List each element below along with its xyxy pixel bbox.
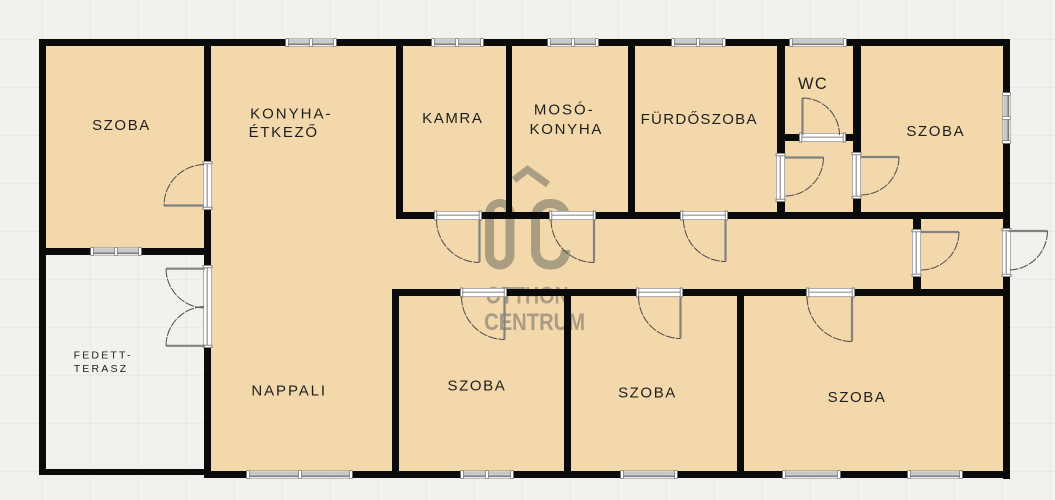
svg-text:SZOBA: SZOBA xyxy=(906,123,965,140)
svg-text:SZOBA: SZOBA xyxy=(447,378,506,395)
svg-text:MOSÓ-: MOSÓ- xyxy=(534,102,595,119)
svg-text:FEDETT-: FEDETT- xyxy=(74,349,133,361)
svg-text:KAMRA: KAMRA xyxy=(422,110,483,127)
svg-text:TERASZ: TERASZ xyxy=(74,363,129,375)
svg-text:KONYHA-: KONYHA- xyxy=(250,105,332,122)
svg-text:WC: WC xyxy=(798,75,828,93)
svg-text:SZOBA: SZOBA xyxy=(618,385,677,402)
svg-text:FÜRDŐSZOBA: FÜRDŐSZOBA xyxy=(641,110,758,128)
svg-text:SZOBA: SZOBA xyxy=(92,117,151,134)
svg-text:NAPPALI: NAPPALI xyxy=(251,383,327,400)
svg-text:ÉTKEZŐ: ÉTKEZŐ xyxy=(249,124,319,141)
svg-text:SZOBA: SZOBA xyxy=(828,389,887,406)
svg-text:KONYHA: KONYHA xyxy=(530,121,604,138)
